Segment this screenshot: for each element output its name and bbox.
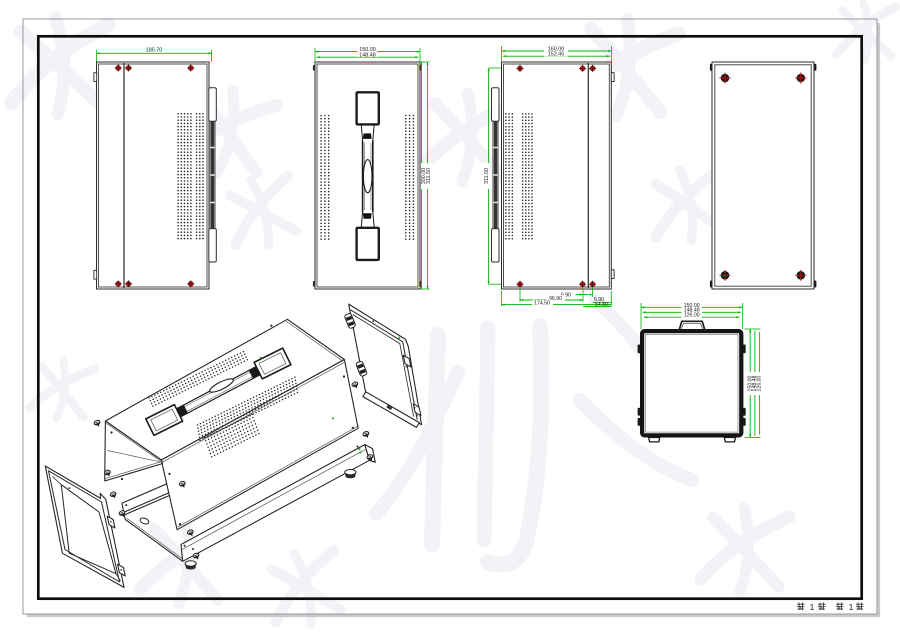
- svg-text:1: 1: [849, 602, 854, 612]
- svg-text:148.48: 148.48: [359, 52, 376, 58]
- svg-text:54.80: 54.80: [595, 302, 608, 308]
- svg-text:311.50: 311.50: [484, 168, 490, 184]
- svg-text:126.00: 126.00: [756, 375, 762, 391]
- svg-text:126.00: 126.00: [684, 312, 700, 318]
- svg-text:1: 1: [810, 602, 815, 612]
- svg-text:311.50: 311.50: [426, 168, 432, 184]
- svg-text:185.70: 185.70: [146, 48, 163, 54]
- svg-text:152.45: 152.45: [548, 52, 565, 58]
- svg-text:174.50: 174.50: [534, 301, 550, 307]
